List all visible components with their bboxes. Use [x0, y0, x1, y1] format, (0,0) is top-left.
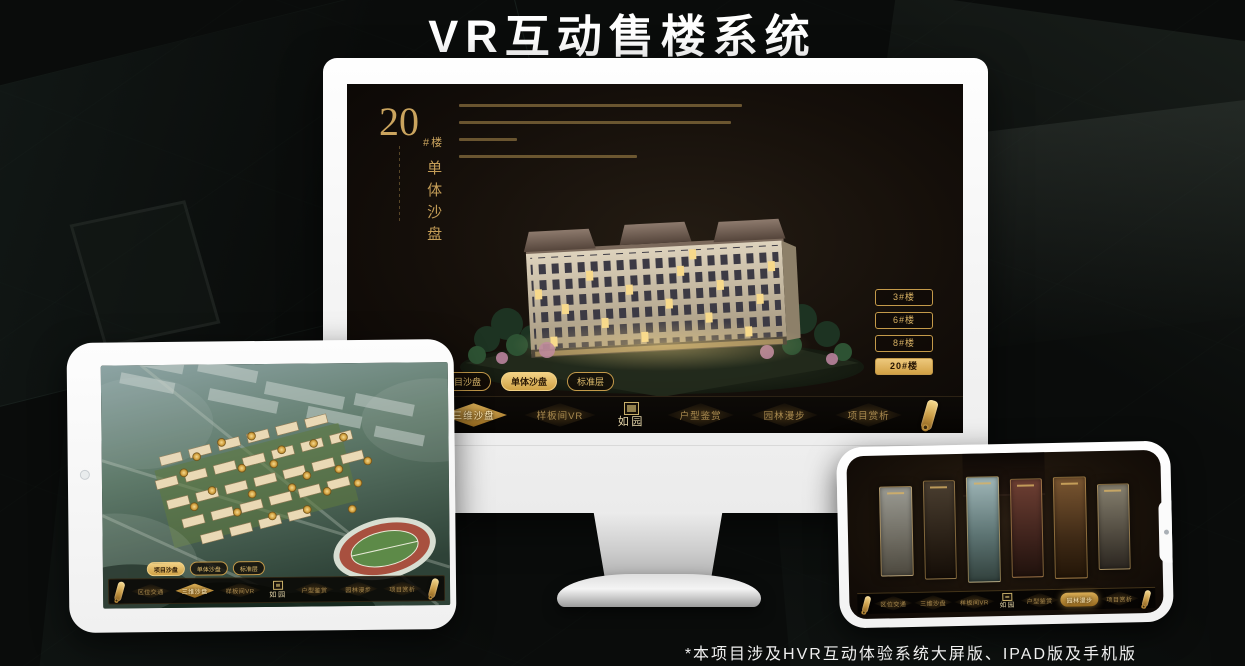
- tablet-device: 项目沙盘 单体沙盘 标准层 区位交通 三维沙盘 样板间VR 如园 户型鉴赏 园林…: [66, 339, 456, 633]
- gallery-card[interactable]: [1053, 476, 1088, 579]
- scroll-menu-icon[interactable]: [920, 399, 939, 431]
- phone-gallery: [879, 466, 1131, 590]
- gallery-card[interactable]: [1009, 478, 1044, 578]
- background-plaque: [70, 200, 221, 348]
- block-title: 20 #楼 单体沙盘: [379, 102, 444, 248]
- scroll-menu-icon[interactable]: [114, 581, 126, 602]
- floor-button-20[interactable]: 20#楼: [875, 358, 933, 375]
- block-unit: #楼: [423, 134, 444, 150]
- block-subtitle: 单体沙盘: [385, 160, 444, 248]
- nav-item-location-traffic[interactable]: 区位交通: [877, 597, 909, 610]
- floor-button-3[interactable]: 3#楼: [875, 289, 933, 306]
- page-title: VR互动售楼系统: [0, 0, 1245, 65]
- nav-item-model-room-vr[interactable]: 样板间VR: [222, 584, 258, 596]
- gallery-card-caption: [1061, 482, 1078, 484]
- nav-item-project-overview[interactable]: 项目赏析: [1103, 592, 1135, 605]
- seal-icon: [273, 581, 283, 590]
- tab-standard-floor[interactable]: 标准层: [233, 561, 265, 575]
- tablet-screen: 项目沙盘 单体沙盘 标准层 区位交通 三维沙盘 样板间VR 如园 户型鉴赏 园林…: [101, 362, 451, 609]
- nav-item-floorplan-gallery[interactable]: 户型鉴赏: [298, 583, 331, 595]
- seal-icon: [624, 402, 639, 415]
- gallery-card-caption: [930, 486, 947, 488]
- gallery-card-caption: [1017, 484, 1034, 486]
- phone-device: 区位交通 三维沙盘 样板间VR 如园 户型鉴赏 园林漫步 项目赏析: [836, 441, 1174, 629]
- gallery-card[interactable]: [922, 480, 957, 580]
- nav-item-garden-walk[interactable]: 园林漫步: [342, 583, 375, 595]
- nav-item-3d-sandbox[interactable]: 三维沙盘: [917, 596, 949, 609]
- block-number: 20: [379, 99, 419, 144]
- tab-project-sandbox[interactable]: 项目沙盘: [147, 562, 185, 576]
- nav-item-project-overview[interactable]: 项目赏析: [840, 405, 897, 425]
- tablet-nav-bar: 区位交通 三维沙盘 样板间VR 如园 户型鉴赏 园林漫步 项目赏析: [108, 575, 445, 605]
- nav-item-floorplan-gallery[interactable]: 户型鉴赏: [1024, 594, 1056, 607]
- nav-item-3d-sandbox[interactable]: 三维沙盘: [178, 585, 211, 597]
- monitor-sub-tabs: 项目沙盘 单体沙盘 标准层: [435, 372, 614, 391]
- tablet-sub-tabs: 项目沙盘 单体沙盘 标准层: [147, 561, 265, 576]
- gallery-card-caption: [974, 482, 991, 484]
- tab-standard-floor[interactable]: 标准层: [567, 372, 614, 391]
- gallery-card-caption: [887, 492, 904, 494]
- tab-single-sandbox[interactable]: 单体沙盘: [501, 372, 557, 391]
- brand-logo: 如园: [618, 402, 646, 429]
- floor-button-8[interactable]: 8#楼: [875, 335, 933, 352]
- gallery-card[interactable]: [879, 485, 913, 576]
- phone-nav-bar: 区位交通 三维沙盘 样板间VR 如园 户型鉴赏 园林漫步 项目赏析: [857, 587, 1155, 614]
- tab-single-sandbox[interactable]: 单体沙盘: [190, 562, 228, 576]
- phone-notch: [1158, 500, 1172, 562]
- nav-item-location-traffic[interactable]: 区位交通: [134, 585, 167, 597]
- floor-button-6[interactable]: 6#楼: [875, 312, 933, 329]
- monitor-base: [557, 574, 761, 607]
- monitor-stand: [588, 512, 728, 578]
- phone-screen: 区位交通 三维沙盘 样板间VR 如园 户型鉴赏 园林漫步 项目赏析: [846, 450, 1163, 620]
- floor-selector: 3#楼 6#楼 8#楼 20#楼: [875, 289, 933, 375]
- block-subtitle-english-decor: [399, 146, 400, 224]
- phone-camera-icon: [1164, 529, 1169, 534]
- brand-logo: 如园: [999, 592, 1016, 609]
- gallery-card[interactable]: [1096, 483, 1130, 570]
- scroll-menu-icon[interactable]: [1141, 589, 1151, 607]
- building-model-render: [447, 159, 877, 399]
- nav-item-model-room-vr[interactable]: 样板间VR: [957, 595, 992, 608]
- nav-item-model-room-vr[interactable]: 样板间VR: [529, 405, 591, 425]
- poster: VR互动售楼系统 20 #楼 单体沙盘: [0, 0, 1245, 666]
- seal-icon: [1003, 593, 1013, 602]
- scroll-menu-icon[interactable]: [861, 595, 871, 613]
- nav-item-project-overview[interactable]: 项目赏析: [386, 582, 419, 594]
- footnote-text: *本项目涉及HVR互动体验系统大屏版、IPAD版及手机版: [685, 640, 1137, 664]
- nav-item-garden-walk[interactable]: 园林漫步: [1063, 593, 1095, 606]
- gallery-card[interactable]: [966, 476, 1001, 583]
- scroll-menu-icon[interactable]: [428, 578, 440, 599]
- gallery-card-caption: [1104, 489, 1121, 491]
- nav-item-floorplan-gallery[interactable]: 户型鉴赏: [672, 405, 729, 425]
- tablet-camera-icon: [80, 470, 90, 480]
- nav-item-garden-walk[interactable]: 园林漫步: [756, 405, 813, 425]
- brand-logo: 如园: [269, 581, 287, 599]
